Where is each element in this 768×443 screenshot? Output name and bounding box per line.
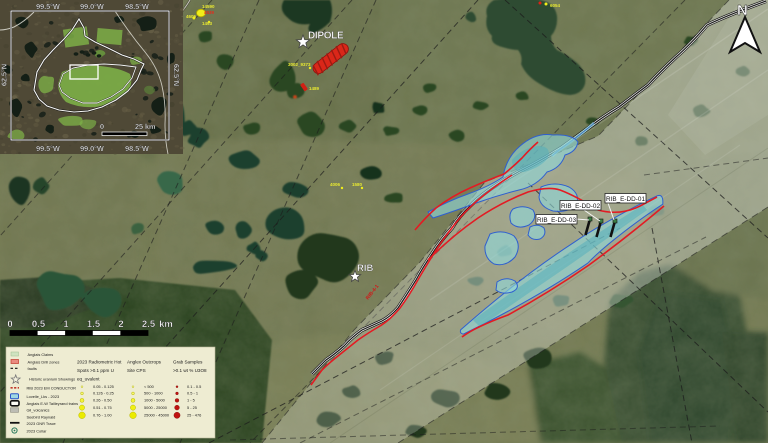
svg-text:Anglais Claims: Anglais Claims [28,352,54,357]
svg-text:62.5°N: 62.5°N [0,64,9,86]
svg-text:>0.1 wt % U3O8: >0.1 wt % U3O8 [173,368,207,373]
svg-text:5000 - 25000: 5000 - 25000 [144,405,168,410]
svg-text:1580: 1580 [352,182,363,187]
svg-text:0.26 - 0.50: 0.26 - 0.50 [93,398,112,403]
svg-text:2023 Collar: 2023 Collar [27,429,48,434]
svg-text:1000 - 5000: 1000 - 5000 [144,398,166,403]
svg-text:1: 1 [63,319,69,330]
svg-text:0.05 - 0.125: 0.05 - 0.125 [93,384,114,389]
svg-text:98.5°W: 98.5°W [125,2,149,11]
svg-text:25 - 476: 25 - 476 [187,413,201,418]
svg-text:Anglex Outcrops: Anglex Outcrops [127,360,162,365]
svg-text:2023 Radiometric Hot: 2023 Radiometric Hot [77,360,122,365]
svg-text:DIPOLE: DIPOLE [308,31,344,42]
svg-text:0: 0 [100,122,104,131]
svg-text:2.5: 2.5 [142,319,156,330]
svg-text:5 - 25: 5 - 25 [187,405,197,410]
svg-text:0.76 - 1.00: 0.76 - 1.00 [93,413,112,418]
svg-text:km: km [159,319,173,330]
svg-text:Grab Samples: Grab Samples [173,360,203,365]
svg-text:25 km: 25 km [135,122,155,131]
svg-text:Anglais E-W Tailleyrand trains: Anglais E-W Tailleyrand trains [27,401,79,406]
svg-text:3002_9373: 3002_9373 [288,62,311,67]
svg-text:1.5: 1.5 [87,319,101,330]
svg-text:2: 2 [118,319,123,330]
svg-text:RIB 2023 EM CONDUCTOR: RIB 2023 EM CONDUCTOR [27,386,77,391]
svg-text:2023 GNR Trace: 2023 GNR Trace [27,421,56,426]
svg-text:Seebird Raynald: Seebird Raynald [27,414,56,419]
svg-text:0.1 - 0.5: 0.1 - 0.5 [187,384,201,389]
svg-text:N: N [737,2,748,19]
svg-text:Site CPS: Site CPS [127,368,146,373]
svg-text:4605: 4605 [186,14,197,19]
svg-text:RIB_E-DD-01: RIB_E-DD-01 [606,196,646,203]
svg-text:0.51 - 0.75: 0.51 - 0.75 [93,405,112,410]
svg-text:0.5: 0.5 [32,319,46,330]
svg-text:eq_uvalent: eq_uvalent [77,377,100,382]
svg-text:0: 0 [7,319,12,330]
svg-text:99.0°W: 99.0°W [80,144,104,153]
svg-text:62.5°N: 62.5°N [172,64,181,86]
svg-text:6054: 6054 [550,3,561,8]
svg-text:1 - 5: 1 - 5 [187,398,195,403]
svg-text:1493: 1493 [202,21,213,26]
svg-text:0.126 - 0.25: 0.126 - 0.25 [93,391,114,396]
svg-text:25000 - 45000: 25000 - 45000 [144,413,170,418]
svg-text:Lovelle_Lks - 2023: Lovelle_Lks - 2023 [27,394,60,399]
svg-text:14590: 14590 [202,4,215,9]
svg-text:1489: 1489 [309,86,320,91]
svg-text:0.5 - 1: 0.5 - 1 [187,391,198,396]
svg-text:Anglais Drill zones: Anglais Drill zones [28,359,60,364]
svg-text:500 - 1000: 500 - 1000 [144,391,163,396]
svg-text:faults: faults [28,366,37,371]
svg-text:99.5°W: 99.5°W [36,2,60,11]
svg-text:Historic uranium Showings: Historic uranium Showings [29,377,75,382]
svg-text:< 500: < 500 [144,384,155,389]
svg-text:98.5°W: 98.5°W [125,144,149,153]
svg-text:Spots >0.1 ppm U: Spots >0.1 ppm U [77,368,114,373]
svg-text:RIB_E-DD-02: RIB_E-DD-02 [561,203,601,210]
svg-text:99.5°W: 99.5°W [36,144,60,153]
svg-text:4006: 4006 [330,182,341,187]
svg-text:4539: 4539 [204,10,215,15]
svg-text:99.0°W: 99.0°W [80,2,104,11]
svg-text:Gil_volcanics: Gil_volcanics [27,408,50,413]
svg-text:RIB_E-DD-03: RIB_E-DD-03 [537,217,577,224]
svg-text:RIB: RIB [357,263,374,274]
